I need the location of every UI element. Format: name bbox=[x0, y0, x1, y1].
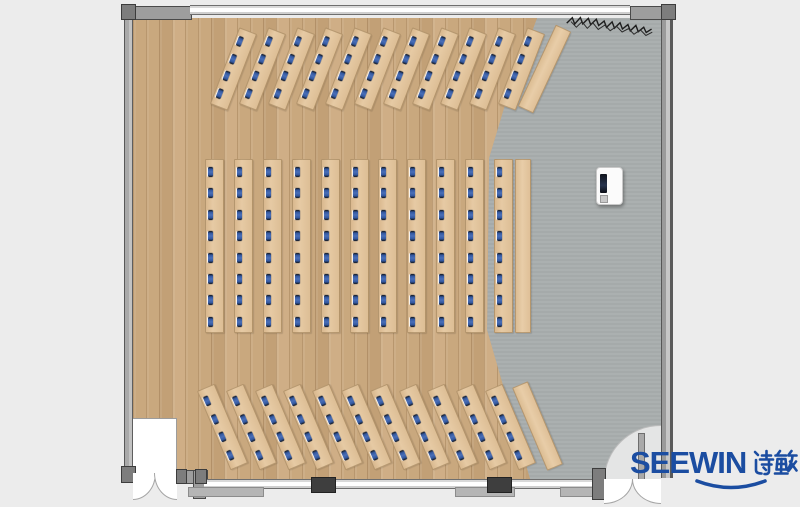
seat-marker bbox=[404, 395, 413, 406]
structural-column-2 bbox=[487, 477, 512, 493]
seat-marker bbox=[376, 395, 385, 406]
seat-marker bbox=[468, 210, 473, 220]
wall-cap-a bbox=[176, 469, 187, 484]
seat-marker bbox=[216, 88, 224, 99]
seat-marker bbox=[295, 295, 300, 305]
wall-right bbox=[661, 17, 673, 478]
seat-marker bbox=[268, 413, 277, 424]
floor-plan-canvas: SEEWIN bbox=[0, 0, 800, 507]
desk-row bbox=[465, 159, 484, 333]
seat-marker bbox=[439, 274, 444, 284]
seat-marker bbox=[524, 36, 532, 47]
seat-marker bbox=[395, 70, 403, 81]
seat-marker bbox=[324, 210, 329, 220]
seat-marker bbox=[485, 449, 494, 460]
seat-marker bbox=[353, 210, 358, 220]
seat-marker bbox=[381, 210, 386, 220]
wall-left bbox=[124, 17, 133, 470]
seat-marker bbox=[353, 167, 358, 177]
seat-marker bbox=[389, 88, 397, 99]
brand-logo: SEEWIN bbox=[630, 448, 800, 500]
seat-marker bbox=[366, 70, 374, 81]
seat-marker bbox=[424, 70, 432, 81]
seat-marker bbox=[324, 274, 329, 284]
seat-marker bbox=[370, 449, 379, 460]
seat-marker bbox=[208, 317, 213, 327]
seat-marker bbox=[236, 36, 244, 47]
brand-logo-swoosh-icon bbox=[694, 479, 768, 495]
seat-marker bbox=[381, 188, 386, 198]
desk-row bbox=[321, 159, 340, 333]
seat-marker bbox=[439, 167, 444, 177]
seat-marker bbox=[295, 317, 300, 327]
seat-marker bbox=[266, 274, 271, 284]
seat-marker bbox=[506, 431, 515, 442]
dispenser-panel bbox=[600, 174, 607, 193]
wall-top-left-segment bbox=[133, 6, 192, 20]
brand-logo-text: SEEWIN bbox=[630, 448, 746, 477]
seat-marker bbox=[208, 274, 213, 284]
seat-marker bbox=[410, 231, 415, 241]
seat-marker bbox=[222, 70, 230, 81]
brand-logo-chinese-icon bbox=[752, 449, 798, 478]
desk-row bbox=[292, 159, 311, 333]
seat-marker bbox=[237, 317, 242, 327]
seat-marker bbox=[514, 449, 523, 460]
seat-marker bbox=[410, 167, 415, 177]
seat-marker bbox=[324, 317, 329, 327]
seat-marker bbox=[468, 274, 473, 284]
seat-marker bbox=[439, 295, 444, 305]
dispenser-tray bbox=[600, 195, 608, 203]
seat-marker bbox=[266, 231, 271, 241]
seat-marker bbox=[264, 36, 272, 47]
seat-marker bbox=[412, 413, 421, 424]
water-dispenser bbox=[596, 167, 623, 205]
seat-marker bbox=[210, 413, 219, 424]
seat-marker bbox=[497, 295, 502, 305]
seat-marker bbox=[258, 53, 266, 64]
seat-marker bbox=[417, 88, 425, 99]
seat-marker bbox=[497, 167, 502, 177]
seat-marker bbox=[239, 413, 248, 424]
seat-marker bbox=[347, 395, 356, 406]
seat-marker bbox=[331, 88, 339, 99]
seat-marker bbox=[427, 449, 436, 460]
seat-marker bbox=[229, 53, 237, 64]
seat-marker bbox=[466, 36, 474, 47]
seat-marker bbox=[373, 53, 381, 64]
seat-marker bbox=[237, 231, 242, 241]
seat-marker bbox=[488, 53, 496, 64]
seat-marker bbox=[208, 167, 213, 177]
seat-marker bbox=[333, 431, 342, 442]
seat-marker bbox=[203, 395, 212, 406]
seat-marker bbox=[309, 70, 317, 81]
seat-marker bbox=[273, 88, 281, 99]
seat-marker bbox=[420, 431, 429, 442]
seat-marker bbox=[237, 167, 242, 177]
desk-row bbox=[234, 159, 253, 333]
seat-marker bbox=[293, 36, 301, 47]
seat-marker bbox=[410, 253, 415, 263]
seat-marker bbox=[497, 253, 502, 263]
seat-marker bbox=[245, 88, 253, 99]
wall-cap-b bbox=[195, 469, 207, 484]
structural-column-1 bbox=[311, 477, 336, 493]
seat-marker bbox=[408, 36, 416, 47]
desk-row bbox=[436, 159, 455, 333]
seat-marker bbox=[289, 395, 298, 406]
seat-marker bbox=[497, 210, 502, 220]
seat-marker bbox=[353, 317, 358, 327]
seat-marker bbox=[297, 413, 306, 424]
seat-marker bbox=[497, 231, 502, 241]
seat-marker bbox=[338, 70, 346, 81]
window-wall-top bbox=[190, 5, 630, 15]
seat-marker bbox=[468, 231, 473, 241]
seat-marker bbox=[324, 231, 329, 241]
seat-marker bbox=[441, 413, 450, 424]
seat-marker bbox=[324, 295, 329, 305]
desk-row bbox=[407, 159, 426, 333]
seat-marker bbox=[312, 449, 321, 460]
seat-marker bbox=[283, 449, 292, 460]
seat-marker bbox=[266, 253, 271, 263]
seat-marker bbox=[208, 188, 213, 198]
seat-marker bbox=[448, 431, 457, 442]
seat-marker bbox=[410, 188, 415, 198]
seat-marker bbox=[398, 449, 407, 460]
seat-marker bbox=[354, 413, 363, 424]
seat-marker bbox=[208, 210, 213, 220]
seat-marker bbox=[497, 188, 502, 198]
seat-marker bbox=[208, 231, 213, 241]
seat-marker bbox=[237, 295, 242, 305]
desk-row bbox=[350, 159, 369, 333]
seat-marker bbox=[266, 317, 271, 327]
desk-row bbox=[263, 159, 282, 333]
seat-marker bbox=[324, 167, 329, 177]
seat-marker bbox=[266, 188, 271, 198]
seat-marker bbox=[468, 253, 473, 263]
seat-marker bbox=[360, 88, 368, 99]
seat-marker bbox=[439, 188, 444, 198]
seat-marker bbox=[353, 253, 358, 263]
seat-marker bbox=[498, 413, 507, 424]
seat-marker bbox=[439, 210, 444, 220]
seat-marker bbox=[381, 253, 386, 263]
seat-marker bbox=[381, 231, 386, 241]
seat-marker bbox=[247, 431, 256, 442]
seat-marker bbox=[381, 317, 386, 327]
seat-marker bbox=[324, 253, 329, 263]
seat-marker bbox=[287, 53, 295, 64]
seat-marker bbox=[226, 449, 235, 460]
seat-marker bbox=[295, 274, 300, 284]
seat-marker bbox=[324, 188, 329, 198]
seat-marker bbox=[495, 36, 503, 47]
seat-marker bbox=[437, 36, 445, 47]
seat-marker bbox=[208, 295, 213, 305]
seat-marker bbox=[260, 395, 269, 406]
seat-marker bbox=[237, 210, 242, 220]
seat-marker bbox=[295, 231, 300, 241]
seat-marker bbox=[251, 70, 259, 81]
seat-marker bbox=[439, 317, 444, 327]
desk-row bbox=[205, 159, 224, 333]
seat-marker bbox=[344, 53, 352, 64]
seat-marker bbox=[381, 167, 386, 177]
seat-marker bbox=[295, 210, 300, 220]
seat-marker bbox=[326, 413, 335, 424]
seat-marker bbox=[353, 274, 358, 284]
seat-marker bbox=[380, 36, 388, 47]
seat-marker bbox=[410, 210, 415, 220]
storage-room bbox=[133, 418, 177, 480]
seat-marker bbox=[351, 36, 359, 47]
seat-marker bbox=[456, 449, 465, 460]
seat-marker bbox=[491, 395, 500, 406]
seat-marker bbox=[439, 253, 444, 263]
seat-marker bbox=[254, 449, 263, 460]
seat-marker bbox=[322, 36, 330, 47]
seat-marker bbox=[475, 88, 483, 99]
seat-marker bbox=[497, 274, 502, 284]
seat-marker bbox=[383, 413, 392, 424]
seat-marker bbox=[353, 295, 358, 305]
seat-marker bbox=[410, 317, 415, 327]
seat-marker bbox=[208, 253, 213, 263]
seat-marker bbox=[276, 431, 285, 442]
seat-marker bbox=[517, 53, 525, 64]
seat-marker bbox=[468, 188, 473, 198]
wall-post-top-left bbox=[121, 4, 136, 20]
seat-marker bbox=[237, 274, 242, 284]
seat-marker bbox=[470, 413, 479, 424]
seat-marker bbox=[504, 88, 512, 99]
desk-row bbox=[494, 159, 513, 333]
desk-row bbox=[378, 159, 397, 333]
seat-marker bbox=[462, 395, 471, 406]
side-table bbox=[515, 159, 531, 333]
seat-marker bbox=[266, 167, 271, 177]
seat-marker bbox=[295, 167, 300, 177]
seat-marker bbox=[453, 70, 461, 81]
seat-marker bbox=[497, 317, 502, 327]
seat-marker bbox=[468, 167, 473, 177]
seat-marker bbox=[477, 431, 486, 442]
seat-marker bbox=[232, 395, 241, 406]
seat-marker bbox=[459, 53, 467, 64]
seat-marker bbox=[381, 295, 386, 305]
seat-marker bbox=[362, 431, 371, 442]
seat-marker bbox=[218, 431, 227, 442]
seat-marker bbox=[468, 317, 473, 327]
seat-marker bbox=[237, 253, 242, 263]
seat-marker bbox=[410, 295, 415, 305]
seat-marker bbox=[237, 188, 242, 198]
seat-marker bbox=[353, 231, 358, 241]
wall-post-top-right bbox=[661, 4, 676, 20]
seat-marker bbox=[410, 274, 415, 284]
seat-marker bbox=[431, 53, 439, 64]
seat-marker bbox=[510, 70, 518, 81]
seat-marker bbox=[266, 210, 271, 220]
seat-marker bbox=[266, 295, 271, 305]
seat-marker bbox=[482, 70, 490, 81]
seat-marker bbox=[446, 88, 454, 99]
seat-marker bbox=[391, 431, 400, 442]
seat-marker bbox=[304, 431, 313, 442]
window-sill-left bbox=[188, 487, 264, 497]
window-sill-far-right bbox=[560, 487, 594, 497]
seat-marker bbox=[353, 188, 358, 198]
seat-marker bbox=[402, 53, 410, 64]
desk-layer bbox=[0, 0, 800, 507]
seat-marker bbox=[381, 274, 386, 284]
seat-marker bbox=[315, 53, 323, 64]
seat-marker bbox=[468, 295, 473, 305]
seat-marker bbox=[341, 449, 350, 460]
seat-marker bbox=[302, 88, 310, 99]
seat-marker bbox=[295, 253, 300, 263]
seat-marker bbox=[318, 395, 327, 406]
seat-marker bbox=[295, 188, 300, 198]
seat-marker bbox=[280, 70, 288, 81]
seat-marker bbox=[433, 395, 442, 406]
seat-marker bbox=[439, 231, 444, 241]
